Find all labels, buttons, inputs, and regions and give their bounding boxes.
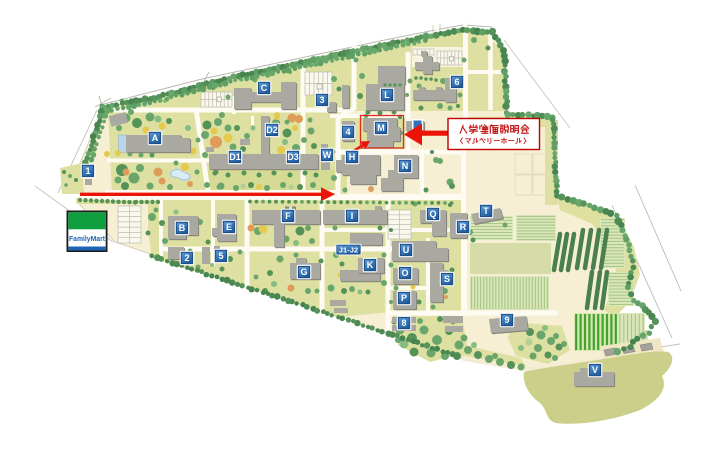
- svg-text:J1-J2: J1-J2: [339, 245, 358, 254]
- svg-text:8: 8: [401, 318, 406, 328]
- svg-text:4: 4: [345, 127, 350, 137]
- svg-text:U: U: [403, 245, 410, 255]
- svg-text:E: E: [226, 222, 232, 232]
- svg-text:D3: D3: [287, 152, 299, 162]
- svg-text:S: S: [444, 274, 450, 284]
- svg-text:FamilyMart: FamilyMart: [69, 234, 105, 243]
- svg-text:B: B: [179, 223, 186, 233]
- svg-text:2: 2: [184, 253, 189, 263]
- svg-text:M: M: [377, 123, 385, 133]
- svg-text:D2: D2: [266, 125, 278, 135]
- svg-text:O: O: [401, 268, 408, 278]
- svg-text:5: 5: [218, 251, 223, 261]
- svg-text:N: N: [402, 161, 409, 171]
- svg-text:L: L: [384, 90, 390, 100]
- svg-text:H: H: [349, 152, 356, 162]
- svg-text:P: P: [401, 293, 407, 303]
- svg-text:D1: D1: [229, 152, 241, 162]
- svg-text:6: 6: [454, 77, 459, 87]
- svg-text:3: 3: [319, 95, 324, 105]
- svg-text:K: K: [367, 260, 374, 270]
- svg-text:1: 1: [85, 166, 90, 176]
- svg-text:9: 9: [504, 315, 509, 325]
- svg-text:C: C: [261, 83, 268, 93]
- svg-text:T: T: [483, 206, 489, 216]
- svg-text:W: W: [323, 150, 332, 160]
- svg-text:I: I: [351, 211, 354, 221]
- svg-text:F: F: [285, 211, 291, 221]
- svg-text:G: G: [300, 267, 307, 277]
- svg-text:R: R: [460, 222, 467, 232]
- svg-text:Q: Q: [429, 209, 436, 219]
- svg-text:A: A: [152, 133, 159, 143]
- svg-text:V: V: [592, 365, 598, 375]
